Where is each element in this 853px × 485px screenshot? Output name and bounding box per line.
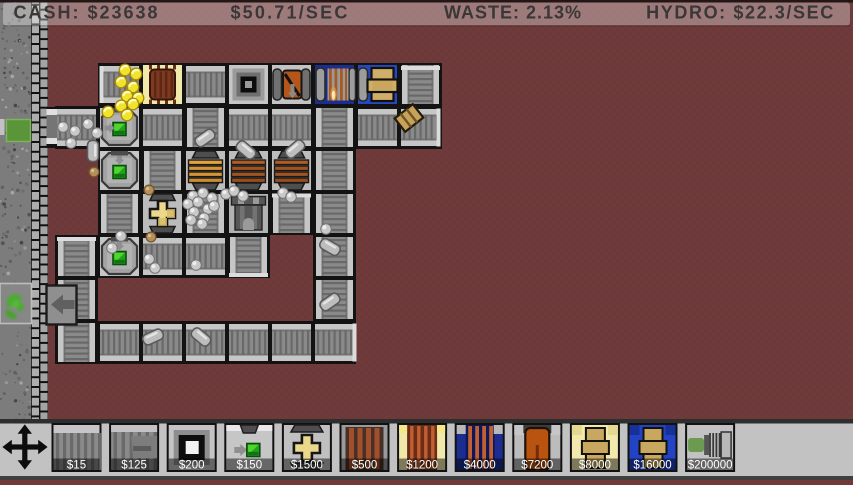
svg-text:$500: $500 <box>352 459 378 471</box>
svg-text:CASH: $23638: CASH: $23638 <box>13 3 159 23</box>
svg-text:$150: $150 <box>237 459 263 471</box>
svg-text:HYDRO: $22.3/SEC: HYDRO: $22.3/SEC <box>646 3 835 23</box>
svg-text:WASTE: 2.13%: WASTE: 2.13% <box>444 3 582 23</box>
svg-text:$200: $200 <box>179 459 205 471</box>
svg-text:$16000: $16000 <box>633 459 671 471</box>
svg-text:$125: $125 <box>121 459 147 471</box>
svg-text:$15: $15 <box>67 459 86 471</box>
svg-text:$7200: $7200 <box>521 459 553 471</box>
svg-text:$1500: $1500 <box>291 459 323 471</box>
svg-text:$1200: $1200 <box>406 459 438 471</box>
svg-text:$4000: $4000 <box>464 459 496 471</box>
svg-text:$50.71/SEC: $50.71/SEC <box>230 3 349 23</box>
svg-text:$200000: $200000 <box>688 459 733 471</box>
svg-text:$8000: $8000 <box>579 459 611 471</box>
